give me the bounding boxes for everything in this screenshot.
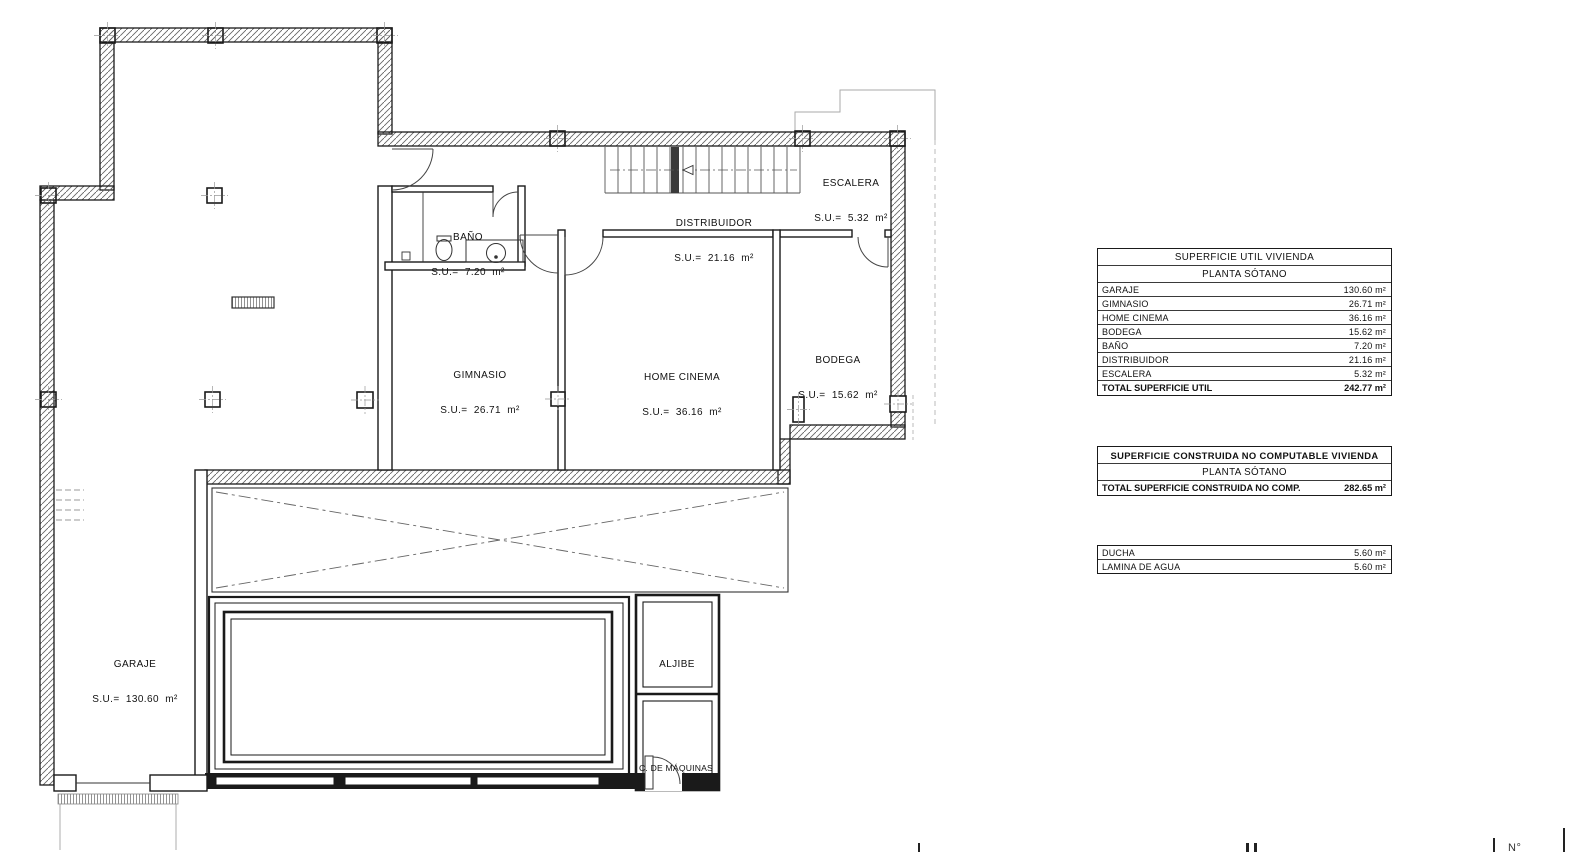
- room-area: S.U.= 15.62 m²: [798, 390, 878, 402]
- table-row: GARAJE 130.60 m²: [1098, 282, 1391, 296]
- room-name: BODEGA: [798, 355, 878, 367]
- titleblock-tick: [1563, 828, 1565, 852]
- room-name: C. DE MÁQUINAS: [639, 763, 713, 775]
- table-total-value: 282.65 m²: [1344, 483, 1386, 493]
- room-label-bodega: BODEGA S.U.= 15.62 m²: [798, 332, 878, 413]
- table-row-label: DUCHA: [1102, 548, 1135, 558]
- table-row-value: 26.71 m²: [1349, 299, 1386, 309]
- upper-floor-outline: [56, 90, 935, 520]
- room-name: HOME CINEMA: [642, 372, 722, 384]
- shower-drain-icon: [402, 252, 410, 260]
- table-row-value: 5.32 m²: [1354, 369, 1386, 379]
- room-label-gimnasio: GIMNASIO S.U.= 26.71 m²: [440, 347, 520, 428]
- room-area: S.U.= 26.71 m²: [440, 405, 520, 417]
- garage-entrance: [54, 775, 207, 850]
- door-home-cinema: [565, 237, 603, 275]
- sheet-number-label: N°: [1508, 842, 1521, 854]
- table-row: LAMINA DE AGUA 5.60 m²: [1098, 559, 1391, 573]
- floor-plan-drawing: [0, 0, 1572, 852]
- room-label-home-cinema: HOME CINEMA S.U.= 36.16 m²: [642, 349, 722, 430]
- table-row-value: 21.16 m²: [1349, 355, 1386, 365]
- table-title: SUPERFICIE UTIL VIVIENDA: [1098, 249, 1391, 265]
- room-label-escalera: ESCALERA S.U.= 5.32 m²: [814, 155, 888, 236]
- table-row: HOME CINEMA 36.16 m²: [1098, 310, 1391, 324]
- room-area: S.U.= 7.20 m²: [431, 267, 505, 279]
- table-total-label: TOTAL SUPERFICIE UTIL: [1102, 383, 1212, 393]
- table-row: BAÑO 7.20 m²: [1098, 338, 1391, 352]
- titleblock-tick: [1493, 838, 1495, 852]
- table-row-label: LAMINA DE AGUA: [1102, 562, 1180, 572]
- void-area: [212, 488, 788, 592]
- table-row-value: 7.20 m²: [1354, 341, 1386, 351]
- table-superficie-util: SUPERFICIE UTIL VIVIENDA PLANTA SÓTANO G…: [1097, 248, 1392, 396]
- room-area: S.U.= 36.16 m²: [642, 407, 722, 419]
- table-row-value: 15.62 m²: [1349, 327, 1386, 337]
- room-area: S.U.= 21.16 m²: [674, 253, 754, 265]
- table-row: ESCALERA 5.32 m²: [1098, 366, 1391, 380]
- table-row-value: 36.16 m²: [1349, 313, 1386, 323]
- table-superficie-construida: SUPERFICIE CONSTRUIDA NO COMPUTABLE VIVI…: [1097, 446, 1392, 496]
- room-name: GARAJE: [92, 659, 177, 671]
- room-name: GIMNASIO: [440, 370, 520, 382]
- table-row-value: 5.60 m²: [1354, 562, 1386, 572]
- table-row: BODEGA 15.62 m²: [1098, 324, 1391, 338]
- table-row-value: 5.60 m²: [1354, 548, 1386, 558]
- door-bodega: [858, 237, 888, 267]
- titleblock-tick: [1246, 843, 1249, 852]
- room-label-aljibe: ALJIBE: [659, 636, 695, 682]
- table-row-label: DISTRIBUIDOR: [1102, 355, 1169, 365]
- table-row: DISTRIBUIDOR 21.16 m²: [1098, 352, 1391, 366]
- room-area: S.U.= 5.32 m²: [814, 213, 888, 225]
- stair-direction-arrow-icon: [683, 166, 693, 175]
- titleblock-tick: [1254, 843, 1257, 852]
- room-label-cuarto-maquinas: C. DE MÁQUINAS: [639, 740, 713, 786]
- room-label-garaje: GARAJE S.U.= 130.60 m²: [92, 636, 177, 717]
- table-row: GIMNASIO 26.71 m²: [1098, 296, 1391, 310]
- table-total-row: TOTAL SUPERFICIE CONSTRUIDA NO COMP. 282…: [1098, 480, 1391, 495]
- table-extras: DUCHA 5.60 m² LAMINA DE AGUA 5.60 m²: [1097, 545, 1392, 574]
- table-title: SUPERFICIE CONSTRUIDA NO COMPUTABLE VIVI…: [1098, 447, 1391, 463]
- table-row-value: 130.60 m²: [1344, 285, 1386, 295]
- table-subtitle: PLANTA SÓTANO: [1098, 463, 1391, 480]
- drawing-sheet: { "plan": { "rooms": [ {"label": "GARAJE…: [0, 0, 1572, 852]
- table-row-label: HOME CINEMA: [1102, 313, 1169, 323]
- table-total-label: TOTAL SUPERFICIE CONSTRUIDA NO COMP.: [1102, 483, 1301, 493]
- table-row-label: ESCALERA: [1102, 369, 1152, 379]
- room-area: S.U.= 130.60 m²: [92, 694, 177, 706]
- room-name: DISTRIBUIDOR: [674, 218, 754, 230]
- pool-basin: [209, 597, 629, 775]
- table-row-label: GIMNASIO: [1102, 299, 1149, 309]
- table-total-value: 242.77 m²: [1344, 383, 1386, 393]
- door-gimnasio: [520, 235, 558, 273]
- room-label-distribuidor: DISTRIBUIDOR S.U.= 21.16 m²: [674, 195, 754, 276]
- table-row-label: BAÑO: [1102, 341, 1128, 351]
- table-subtitle: PLANTA SÓTANO: [1098, 265, 1391, 282]
- room-name: ESCALERA: [814, 178, 888, 190]
- titleblock-tick: [918, 843, 920, 852]
- vent-grille-icon: [232, 297, 274, 308]
- room-name: ALJIBE: [659, 659, 695, 671]
- table-total-row: TOTAL SUPERFICIE UTIL 242.77 m²: [1098, 380, 1391, 395]
- stairs: [605, 147, 800, 193]
- room-name: BAÑO: [431, 232, 505, 244]
- table-row-label: BODEGA: [1102, 327, 1142, 337]
- table-row: DUCHA 5.60 m²: [1098, 546, 1391, 559]
- table-row-label: GARAJE: [1102, 285, 1139, 295]
- door-garage-hall: [392, 149, 433, 190]
- room-label-bano: BAÑO S.U.= 7.20 m²: [431, 209, 505, 290]
